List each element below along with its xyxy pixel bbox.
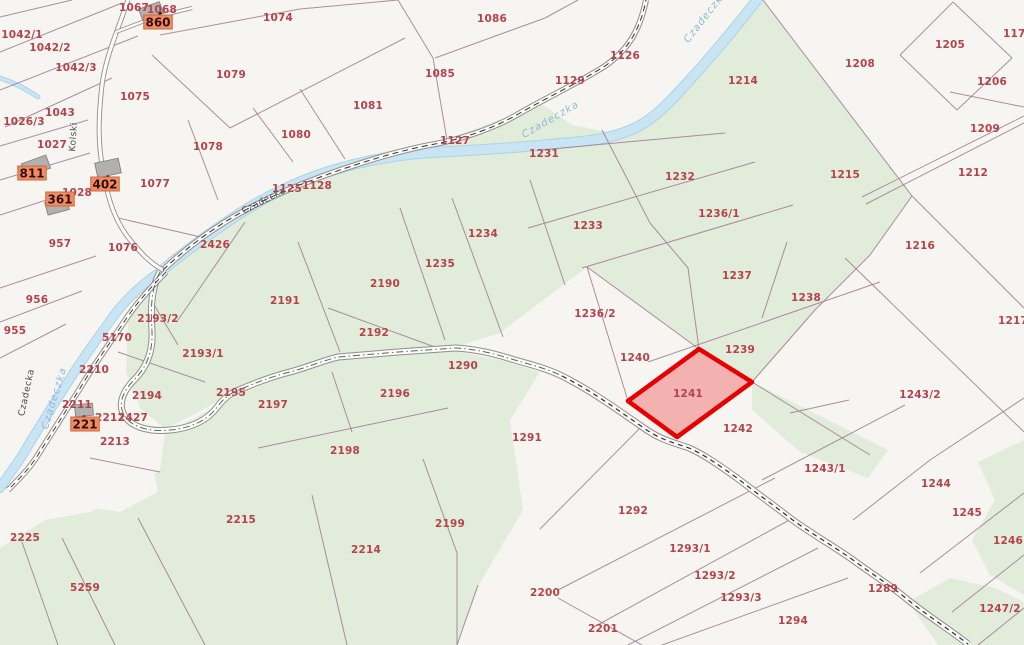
parcel-number-label: 1077: [140, 178, 170, 190]
parcel-number-label: 1291: [512, 432, 542, 444]
parcel-number-label: 1294: [778, 615, 808, 627]
parcel-number-label: 1243/1: [804, 463, 846, 475]
parcel-number-label: 956: [26, 294, 49, 306]
address-label-text[interactable]: 361: [47, 193, 72, 207]
parcel-number-label: 2196: [380, 388, 410, 400]
parcel-number-label: 1129: [555, 75, 585, 87]
address-label-text[interactable]: 402: [92, 178, 117, 192]
parcel-number-label: 2193/2: [137, 313, 179, 325]
parcel-number-label: 1217: [998, 315, 1024, 327]
parcel-number-label: 955: [4, 325, 27, 337]
parcel-number-label: 1026/3: [3, 116, 45, 128]
parcel-number-label: 2225: [10, 532, 40, 544]
parcel-number-label: 1241: [673, 388, 703, 400]
parcel-number-label: 1214: [728, 75, 758, 87]
parcel-number-label: 1293/3: [720, 592, 762, 604]
parcel-number-label: 1080: [281, 129, 311, 141]
parcel-number-label: 1236/1: [698, 208, 740, 220]
parcel-number-label: 2213: [100, 436, 130, 448]
parcel-number-label: 1205: [935, 39, 965, 51]
parcel-number-label: 2214: [351, 544, 381, 556]
parcel-number-label: 2190: [370, 278, 400, 290]
parcel-number-label: 1243/2: [899, 389, 941, 401]
parcel-number-label: 1247/2: [979, 603, 1021, 615]
parcel-number-label: 2210: [79, 364, 109, 376]
parcel-number-label: 1128: [302, 180, 332, 192]
parcel-number-label: 1208: [845, 58, 875, 70]
map-canvas[interactable]: 106710681042/11042/21042/310741079107510…: [0, 0, 1024, 645]
parcel-number-label: 2200: [530, 587, 560, 599]
parcel-number-label: 1236/2: [574, 308, 616, 320]
parcel-number-label: 1235: [425, 258, 455, 270]
parcel-number-label: 1293/1: [669, 543, 711, 555]
address-label-text[interactable]: 221: [72, 418, 97, 432]
parcel-number-label: 1042/3: [55, 62, 97, 74]
parcel-number-label: 1240: [620, 352, 650, 364]
parcel-number-label: 2211: [62, 399, 92, 411]
parcel-number-label: 1216: [905, 240, 935, 252]
address-label-text[interactable]: 860: [145, 16, 170, 30]
parcel-number-label: 1074: [263, 12, 293, 24]
parcel-number-label: 2194: [132, 390, 162, 402]
parcel-number-label: 2201: [588, 623, 618, 635]
parcel-number-label: 1042/1: [1, 29, 43, 41]
parcel-number-label: 1086: [477, 13, 507, 25]
cadastral-map[interactable]: 106710681042/11042/21042/310741079107510…: [0, 0, 1024, 645]
parcel-number-label: 1242: [723, 423, 753, 435]
parcel-number-label: 1075: [120, 91, 150, 103]
parcel-number-label: 1067: [119, 2, 149, 14]
parcel-number-label: 1085: [425, 68, 455, 80]
parcel-number-label: 1078: [193, 141, 223, 153]
parcel-number-label: 1239: [725, 344, 755, 356]
parcel-number-label: 1127: [440, 135, 470, 147]
parcel-number-label: 1175: [1003, 28, 1024, 40]
parcel-number-label: 2191: [270, 295, 300, 307]
parcel-number-label: 1231: [529, 148, 559, 160]
parcel-number-label: 1068: [147, 4, 177, 16]
parcel-number-label: 1233: [573, 220, 603, 232]
parcel-number-label: 1246: [993, 535, 1023, 547]
parcel-number-label: 5259: [70, 582, 100, 594]
parcel-number-label: 2197: [258, 399, 288, 411]
address-label-text[interactable]: 811: [19, 167, 44, 181]
parcel-number-label: 1206: [977, 76, 1007, 88]
parcel-number-label: 1043: [45, 107, 75, 119]
street-name-label: Kolski: [68, 122, 80, 152]
parcel-number-label: 1076: [108, 242, 138, 254]
parcel-number-label: 1209: [970, 123, 1000, 135]
parcel-number-label: 1238: [791, 292, 821, 304]
parcel-number-label: 2427: [118, 412, 148, 424]
parcel-number-label: 5170: [102, 332, 132, 344]
parcel-number-label: 1292: [618, 505, 648, 517]
parcel-number-label: 957: [49, 238, 72, 250]
parcel-number-label: 1079: [216, 69, 246, 81]
parcel-number-label: 1027: [37, 139, 67, 151]
parcel-number-label: 1234: [468, 228, 498, 240]
parcel-number-label: 1232: [665, 171, 695, 183]
parcel-number-label: 2195: [216, 387, 246, 399]
parcel-number-label: 1289: [868, 583, 898, 595]
parcel-number-label: 2192: [359, 327, 389, 339]
parcel-number-label: 1126: [610, 50, 640, 62]
parcel-number-label: 1081: [353, 100, 383, 112]
parcel-number-label: 1293/2: [694, 570, 736, 582]
parcel-number-label: 1237: [722, 270, 752, 282]
parcel-number-label: 1215: [830, 169, 860, 181]
parcel-number-label: 2193/1: [182, 348, 224, 360]
parcel-number-label: 1244: [921, 478, 951, 490]
parcel-number-label: 2198: [330, 445, 360, 457]
parcel-number-label: 2199: [435, 518, 465, 530]
parcel-number-label: 1042/2: [29, 42, 71, 54]
parcel-number-label: 1245: [952, 507, 982, 519]
parcel-number-label: 2215: [226, 514, 256, 526]
parcel-number-label: 1290: [448, 360, 478, 372]
parcel-number-label: 1212: [958, 167, 988, 179]
parcel-number-label: 2426: [200, 239, 230, 251]
